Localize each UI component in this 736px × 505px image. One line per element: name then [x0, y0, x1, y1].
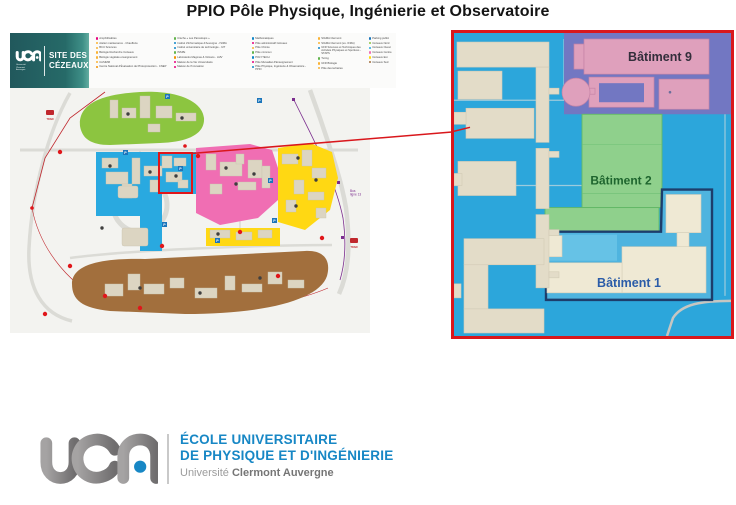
legend-item: Pôle des tertiaires [318, 67, 363, 70]
legend-dot-icon [96, 66, 98, 68]
school-name-line1: ÉCOLE UNIVERSITAIRE [180, 432, 393, 448]
legend-dot-icon [318, 57, 320, 59]
legend-item-label: Pôle Physique, Ingénierie & Observatoire… [255, 65, 311, 71]
site-name-line1: SITE DES [49, 51, 89, 60]
legend-item: Cézeaux Centre [369, 51, 394, 54]
legend-dot-icon [369, 56, 371, 58]
legend-item-label: Turing [321, 57, 329, 60]
legend-item: Parking public [369, 37, 394, 40]
legend-dot-icon [252, 66, 254, 68]
legend-dot-icon [174, 66, 176, 68]
legend-column-3: Mathématiques Pôle administratif Cézeaux… [252, 37, 312, 86]
university-name-regular: Université [180, 467, 229, 479]
legend-item: INSPE [174, 51, 246, 54]
legend-item-label: Institut d'Informatique d'Auvergne - ISI… [177, 42, 227, 45]
legend-item: Institut d'Informatique d'Auvergne - ISI… [174, 42, 246, 45]
campus-map-header: Université Clermont Auvergne SITE DES CÉ… [10, 33, 370, 88]
legend-item: Turing [318, 57, 363, 60]
legend-item-label: Biologie Recherche Cézeaux [99, 51, 134, 54]
legend-item: POLYTECH [252, 56, 312, 59]
legend-item-label: Amphithéâtres [99, 37, 116, 40]
brand-divider [44, 46, 45, 76]
legend-dot-icon [174, 37, 176, 39]
legend-item: Laboratoire Magmas & Volcans - LMV [174, 56, 246, 59]
legend-item-label: Pôle Chimie [255, 46, 270, 49]
legend-dot-icon [252, 61, 254, 63]
legend-dot-icon [369, 47, 371, 49]
legend-item-label: INSPE [177, 51, 185, 54]
legend-dot-icon [174, 56, 176, 58]
batiment2-label: Bâtiment 2 [590, 173, 652, 187]
site-name-line2: CÉZEAUX [49, 61, 89, 70]
legend-item-label: POLYTECH [255, 56, 269, 59]
legend-item-label: Pôle commun [255, 51, 271, 54]
legend-item-label: Cézeaux Sud [372, 61, 388, 64]
campus-map-illustration: P P P P P P P P [10, 88, 370, 333]
legend-item-label: Institut universitaire de technologie - … [177, 46, 225, 49]
legend-item-label: Pôle administratif Cézeaux [255, 42, 287, 45]
legend-item: Centre National d'Évaluation de Photopro… [96, 65, 168, 68]
footer-divider [167, 434, 169, 484]
detail-panel: Bâtiment 9 Bâtiment 2 Bâtiment 1 [451, 30, 734, 339]
legend-item: UFR Sciences et Techniques des Activités… [318, 46, 363, 55]
legend-item-label: Biologie végétale enseignement [99, 56, 137, 59]
legend-dot-icon [96, 42, 98, 44]
uca-mini-logo: Université Clermont Auvergne [15, 49, 41, 72]
uca-mini-sub: Université Clermont Auvergne [16, 64, 40, 72]
detail-map-illustration: Bâtiment 9 Bâtiment 2 Bâtiment 1 [454, 33, 731, 336]
legend-item-label: Cézeaux Est [372, 56, 387, 59]
legend-item: Cézeaux Est [369, 56, 394, 59]
school-name-line2: DE PHYSIQUE ET D'INGÉNIERIE [180, 448, 393, 464]
legend-dot-icon [369, 42, 371, 44]
university-name-bold: Clermont Auvergne [232, 467, 334, 479]
legend-item-label: Pôle Mutualisé d'Enseignement [255, 61, 293, 64]
legend-dot-icon [252, 51, 254, 53]
legend-dot-icon [96, 47, 98, 49]
university-name: Université Clermont Auvergne [180, 467, 393, 479]
svg-text:TRAM: TRAM [47, 118, 54, 121]
legend-dot-icon [318, 67, 320, 69]
legend-dot-icon [174, 42, 176, 44]
map-brand-block: Université Clermont Auvergne SITE DES CÉ… [10, 33, 89, 88]
uca-logo-icon [36, 426, 158, 498]
legend-item: Maison de l'Innovation [174, 65, 246, 68]
legend-item-label: UFR Sciences et Techniques des Activités… [321, 46, 362, 55]
batiment1-label: Bâtiment 1 [597, 276, 661, 290]
footer-brand: ÉCOLE UNIVERSITAIRE DE PHYSIQUE ET D'ING… [36, 426, 393, 498]
legend-column-2: Crèche « Les Parceloups » Institut d'Inf… [174, 37, 246, 86]
legend-dot-icon [252, 42, 254, 44]
legend-dot-icon [174, 51, 176, 53]
legend-item-label: Pôle des tertiaires [321, 67, 343, 70]
legend-item: Cézeaux Nord [369, 42, 394, 45]
map-legend: Amphithéâtres Atelier maintenance - Chau… [89, 33, 396, 88]
legend-dot-icon [369, 37, 371, 39]
legend-dot-icon [252, 37, 254, 39]
legend-dot-icon [174, 47, 176, 49]
legend-item-label: BCU Sciences [99, 46, 116, 49]
legend-column-4: SIGMA Clermont SIGMA Clermont (ex. IFMA)… [318, 37, 363, 86]
legend-dot-icon [96, 61, 98, 63]
legend-dot-icon [96, 37, 98, 39]
legend-item: Cézeaux Sud [369, 61, 394, 64]
legend-dot-icon [96, 51, 98, 53]
legend-dot-icon [369, 51, 371, 53]
batiment9-courtyard [599, 83, 644, 102]
legend-item: BCU Sciences [96, 46, 168, 49]
svg-text:TRAM: TRAM [351, 246, 358, 249]
legend-dot-icon [96, 56, 98, 58]
legend-dot-icon [318, 47, 320, 49]
legend-item-label: SIGMA Clermont (ex. IFMA) [321, 42, 354, 45]
legend-item-label: Atelier maintenance - Chaufferie [99, 42, 138, 45]
legend-item: Biologie végétale enseignement [96, 56, 168, 59]
legend-item-label: Mathématiques [255, 37, 273, 40]
legend-item: Crèche « Les Parceloups » [174, 37, 246, 40]
legend-item-label: UFR Biologie [321, 62, 337, 65]
legend-dot-icon [369, 61, 371, 63]
legend-dot-icon [174, 61, 176, 63]
legend-item: Amphithéâtres [96, 37, 168, 40]
legend-item: SIGMA Clermont (ex. IFMA) [318, 42, 363, 45]
page-title: PPIO Pôle Physique, Ingénierie et Observ… [0, 3, 736, 21]
legend-item: Mathématiques [252, 37, 312, 40]
legend-dot-icon [252, 56, 254, 58]
legend-item: Biologie Recherche Cézeaux [96, 51, 168, 54]
legend-item: Pôle Physique, Ingénierie & Observatoire… [252, 65, 312, 71]
batiment9-mark [669, 91, 672, 94]
legend-item: Pôle administratif Cézeaux [252, 42, 312, 45]
legend-dot-icon [318, 37, 320, 39]
legend-item-label: Parking public [372, 37, 389, 40]
legend-item-label: Laboratoire Magmas & Volcans - LMV [177, 56, 222, 59]
uca-logo-icon [15, 49, 41, 64]
batiment9-label: Bâtiment 9 [628, 50, 692, 64]
legend-item-label: Maison de la Vie Universitaire [177, 61, 213, 64]
uca-sub-line: Auvergne [16, 69, 40, 72]
legend-item: Institut universitaire de technologie - … [174, 46, 246, 49]
legend-dot-icon [318, 62, 320, 64]
legend-item-label: SIGMA Clermont [321, 37, 341, 40]
legend-item: Atelier maintenance - Chaufferie [96, 42, 168, 45]
legend-item-label: Cézeaux Ouest [372, 46, 391, 49]
legend-item-label: CASIMM [99, 61, 110, 64]
legend-column-1: Amphithéâtres Atelier maintenance - Chau… [96, 37, 168, 86]
legend-item: Cézeaux Ouest [369, 46, 394, 49]
legend-column-5: Parking public Cézeaux Nord Cézeaux Oues… [369, 37, 394, 86]
legend-item: CASIMM [96, 61, 168, 64]
legend-item: Pôle Mutualisé d'Enseignement [252, 61, 312, 64]
legend-item: Pôle Chimie [252, 46, 312, 49]
campus-map: Université Clermont Auvergne SITE DES CÉ… [10, 33, 370, 333]
legend-item: Pôle commun [252, 51, 312, 54]
slide-page: PPIO Pôle Physique, Ingénierie et Observ… [0, 0, 736, 505]
legend-item: Maison de la Vie Universitaire [174, 61, 246, 64]
uca-logo-dot [134, 461, 146, 473]
legend-item-label: Cézeaux Centre [372, 51, 391, 54]
legend-item-label: Centre National d'Évaluation de Photopro… [99, 65, 166, 68]
footer-text: ÉCOLE UNIVERSITAIRE DE PHYSIQUE ET D'ING… [180, 432, 393, 479]
site-name: SITE DES CÉZEAUX [49, 51, 89, 69]
legend-item: SIGMA Clermont [318, 37, 363, 40]
legend-item-label: Cézeaux Nord [372, 42, 389, 45]
legend-item: UFR Biologie [318, 62, 363, 65]
legend-item-label: Crèche « Les Parceloups » [177, 37, 209, 40]
legend-item-label: Maison de l'Innovation [177, 65, 204, 68]
legend-dot-icon [252, 47, 254, 49]
legend-dot-icon [318, 42, 320, 44]
